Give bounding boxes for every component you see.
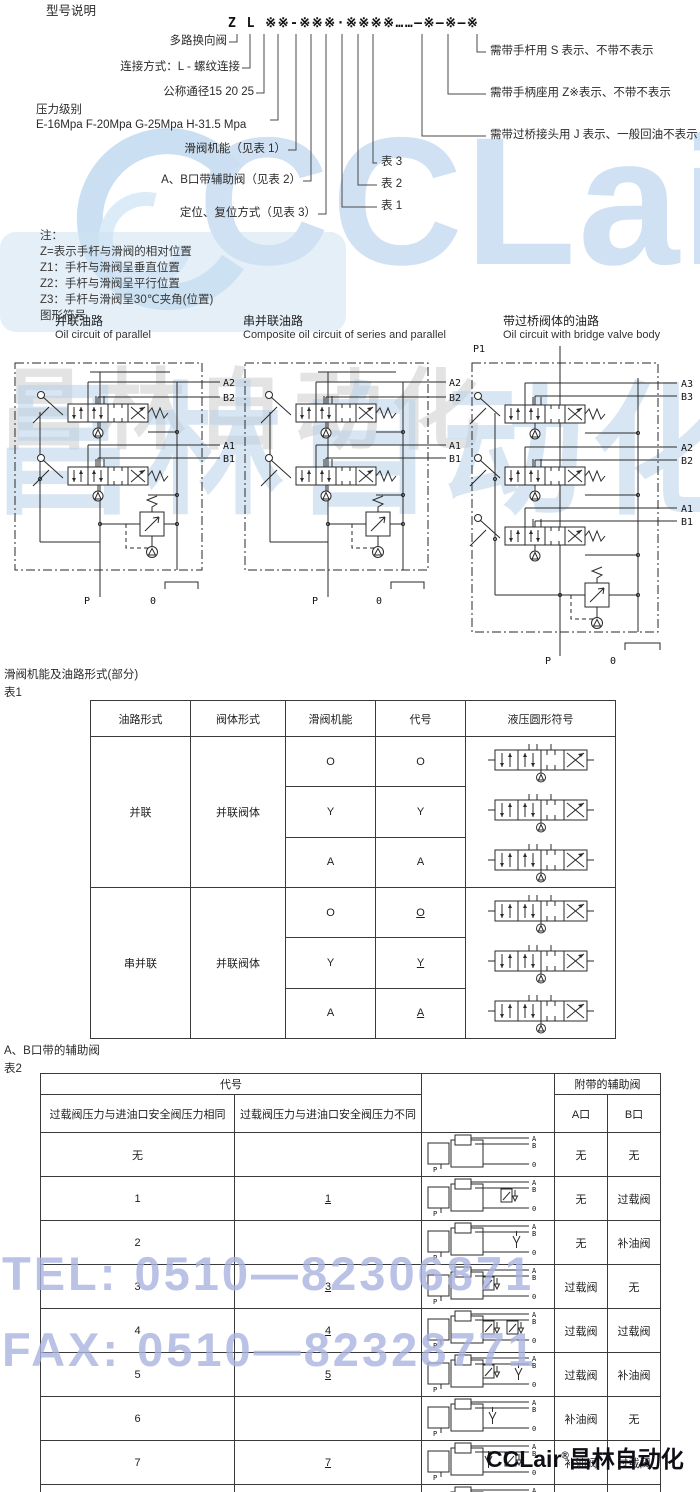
- note-line: Z=表示手杆与滑阀的相对位置: [40, 244, 213, 260]
- table2-caption: A、B口带的辅助阀: [4, 1042, 100, 1058]
- table1-header: 阀体形式: [191, 701, 286, 737]
- circuit3-title-cn: 带过桥阀体的油路: [503, 312, 660, 329]
- port-label-o: 0: [376, 596, 382, 607]
- port-label: B3: [681, 392, 693, 403]
- code-same-cell: 5: [41, 1353, 235, 1397]
- table-row: 1 1 A B 0 P 无 过载阀: [41, 1177, 661, 1221]
- symbol-cell: A B 0 P: [422, 1221, 555, 1265]
- port-label: A1: [449, 441, 461, 452]
- aux-b-cell: 补油阀: [608, 1485, 661, 1492]
- table1: 油路形式 阀体形式 滑阀机能 代号 液压圆形符号 并联 并联阀体 O O: [90, 700, 616, 1039]
- symbol-cell: A B 0 P: [422, 1309, 555, 1353]
- circuit-type-cell: 并联: [91, 737, 191, 888]
- table2-header-row2: 过载阀压力与进油口安全阀压力相同 过载阀压力与进油口安全阀压力不同 A口 B口: [41, 1095, 661, 1133]
- table2-symbol-header: [422, 1074, 555, 1133]
- symbol-cell: A B 0 P: [422, 1353, 555, 1397]
- table1-label: 表1: [4, 684, 22, 700]
- circuit1-title: 并联油路 Oil circuit of parallel: [55, 312, 151, 341]
- table2: 代号 附带的辅助阀 过载阀压力与进油口安全阀压力相同 过载阀压力与进油口安全阀压…: [40, 1073, 661, 1492]
- aux-valve-symbol: A B 0 P: [425, 1485, 551, 1492]
- table1-header: 代号: [376, 701, 466, 737]
- code-same-cell: 1: [41, 1177, 235, 1221]
- aux-valve-symbol: A B 0 P: [425, 1177, 551, 1217]
- code-diff-cell: 5: [235, 1353, 422, 1397]
- port-label-p: P: [433, 1430, 437, 1437]
- table2-header-diff: 过载阀压力与进油口安全阀压力不同: [235, 1095, 422, 1133]
- table2-header-a: A口: [555, 1095, 608, 1133]
- port-label: A2: [223, 378, 235, 389]
- port-label-b: B: [532, 1230, 536, 1238]
- spool-symbol: [482, 740, 600, 784]
- label-connection-type: 连接方式：L - 螺纹连接: [120, 60, 240, 75]
- pressure-grade-values: E-16Mpa F-20Mpa G-25Mpa H-31.5 Mpa: [36, 118, 246, 133]
- port-label-p: P: [312, 596, 318, 607]
- port-label-o: 0: [150, 596, 156, 607]
- port-label: B2: [449, 393, 461, 404]
- model-designation-section: 型号说明 Z L ※※-※※※·※※※※……—※—※—※ 多路换向阀 连接方式：…: [0, 0, 700, 232]
- symbol-cell: [466, 888, 616, 1039]
- table1-caption: 滑阀机能及油路形式(部分): [4, 666, 138, 682]
- code-cell: A: [376, 988, 466, 1038]
- port-label: B1: [449, 454, 461, 465]
- aux-b-cell: 补油阀: [608, 1221, 661, 1265]
- table-row: 无 A B 0 P 无 无: [41, 1133, 661, 1177]
- aux-a-cell: 补油阀: [555, 1397, 608, 1441]
- aux-a-cell: 补油阀: [555, 1485, 608, 1492]
- port-label-o: 0: [532, 1337, 536, 1345]
- notes-block: 注： Z=表示手杆与滑阀的相对位置 Z1：手杆与滑阀呈垂直位置 Z2：手杆与滑阀…: [40, 228, 213, 324]
- aux-a-cell: 无: [555, 1133, 608, 1177]
- circuit2-title-en: Composite oil circuit of series and para…: [243, 329, 446, 341]
- aux-a-cell: 无: [555, 1221, 608, 1265]
- spool-fn-cell: A: [286, 837, 376, 887]
- code-cell: O: [376, 737, 466, 787]
- aux-valve-symbol: A B 0 P: [425, 1397, 551, 1437]
- port-label-p1: P1: [473, 344, 485, 355]
- code-diff-cell: [235, 1397, 422, 1441]
- aux-a-cell: 无: [555, 1177, 608, 1221]
- note-line: Z3：手杆与滑阀呈30℃夹角(位置): [40, 292, 213, 308]
- code-cell: Y: [376, 938, 466, 988]
- port-label: A3: [681, 379, 693, 390]
- port-label: B2: [223, 393, 235, 404]
- circuit1-title-en: Oil circuit of parallel: [55, 329, 151, 341]
- aux-a-cell: 过载阀: [555, 1309, 608, 1353]
- note-line: Z2：手杆与滑阀呈平行位置: [40, 276, 213, 292]
- note-line: 注：: [40, 228, 213, 244]
- port-label-b: B: [532, 1362, 536, 1370]
- port-label-p: P: [433, 1254, 437, 1261]
- table1-header: 液压圆形符号: [466, 701, 616, 737]
- aux-valve-symbol: A B 0 P: [425, 1221, 551, 1261]
- label-pressure-grade: 压力级别 E-16Mpa F-20Mpa G-25Mpa H-31.5 Mpa: [36, 103, 246, 133]
- label-spool-function: 滑阀机能（见表 1）: [184, 142, 286, 157]
- table1-header-row: 油路形式 阀体形式 滑阀机能 代号 液压圆形符号: [91, 701, 616, 737]
- port-label-o: 0: [532, 1293, 536, 1301]
- port-label-p: P: [433, 1474, 437, 1481]
- port-label-p: P: [84, 596, 90, 607]
- port-label-o: 0: [532, 1161, 536, 1169]
- code-cell: O: [376, 888, 466, 938]
- circuit1-title-cn: 并联油路: [55, 312, 151, 329]
- port-label-o: 0: [532, 1205, 536, 1213]
- aux-a-cell: 过载阀: [555, 1353, 608, 1397]
- table-row: 8 A B 0 P 补油阀 补油阀: [41, 1485, 661, 1492]
- footer-brand: CCLair®昌林自动化: [486, 1440, 684, 1474]
- port-label: B2: [681, 456, 693, 467]
- aux-valve-symbol: A B 0 P: [425, 1309, 551, 1349]
- circuit3-title: 带过桥阀体的油路 Oil circuit with bridge valve b…: [503, 312, 660, 341]
- symbol-cell: A B 0 P: [422, 1485, 555, 1492]
- label-multiway-valve: 多路换向阀: [170, 34, 228, 49]
- port-label-p: P: [433, 1210, 437, 1217]
- table-row: 并联 并联阀体 O O: [91, 737, 616, 787]
- aux-b-cell: 补油阀: [608, 1353, 661, 1397]
- aux-valve-symbol: A B 0 P: [425, 1133, 551, 1173]
- symbol-cell: A B 0 P: [422, 1265, 555, 1309]
- label-hand-lever-option: 需带手杆用 S 表示、不带不表示: [490, 44, 654, 59]
- code-same-cell: 3: [41, 1265, 235, 1309]
- ref-table3: 表 3: [381, 155, 402, 170]
- bridge-valve-circuit-diagram: P1 A3 B3 A2 B2 A1 B1 P 0: [465, 338, 700, 673]
- circuit2-title-cn: 串并联油路: [243, 312, 446, 329]
- spool-symbol: [482, 991, 600, 1035]
- table-row: 5 5 A B 0 P 过载阀 补油阀: [41, 1353, 661, 1397]
- footer-brand-cn: 昌林自动化: [569, 1446, 684, 1472]
- port-label-b: B: [532, 1274, 536, 1282]
- footer-brand-name: CCLair: [486, 1446, 561, 1472]
- series-parallel-circuit-diagram: A2 B2 A1 B1 P 0: [238, 352, 463, 652]
- code-diff-cell: [235, 1133, 422, 1177]
- port-label-b: B: [532, 1186, 536, 1194]
- code-diff-cell: 4: [235, 1309, 422, 1353]
- port-label-p: P: [433, 1386, 437, 1393]
- label-handle-seat-option: 需带手柄座用 Z※表示、不带不表示: [490, 86, 671, 101]
- port-label-a: A: [532, 1487, 537, 1492]
- code-same-cell: 无: [41, 1133, 235, 1177]
- label-nominal-diameter: 公称通径15 20 25: [163, 85, 254, 100]
- table-row: 2 A B 0 P 无 补油阀: [41, 1221, 661, 1265]
- table2-header-row: 代号 附带的辅助阀: [41, 1074, 661, 1095]
- table-row: 6 A B 0 P 补油阀 无: [41, 1397, 661, 1441]
- aux-valve-symbol: A B 0 P: [425, 1265, 551, 1305]
- symbol-cell: A B 0 P: [422, 1133, 555, 1177]
- aux-valve-symbol: A B 0 P: [425, 1353, 551, 1393]
- table-row: 串并联 并联阀体 O O: [91, 888, 616, 938]
- port-label: B1: [681, 517, 693, 528]
- code-diff-cell: 3: [235, 1265, 422, 1309]
- code-same-cell: 7: [41, 1441, 235, 1485]
- port-label-p: P: [433, 1166, 437, 1173]
- code-cell: Y: [376, 787, 466, 837]
- code-diff-cell: 1: [235, 1177, 422, 1221]
- parallel-circuit-diagram: A2 B2 A1 B1 P 0: [10, 352, 240, 652]
- aux-b-cell: 无: [608, 1133, 661, 1177]
- spool-fn-cell: O: [286, 737, 376, 787]
- symbol-cell: A B 0 P: [422, 1177, 555, 1221]
- spool-symbol: [482, 790, 600, 834]
- code-diff-cell: 7: [235, 1441, 422, 1485]
- spool-symbol: [482, 840, 600, 884]
- code-same-cell: 4: [41, 1309, 235, 1353]
- label-aux-valve: A、B口带辅助阀（见表 2）: [161, 173, 301, 188]
- code-same-cell: 2: [41, 1221, 235, 1265]
- port-label-o: 0: [610, 656, 616, 667]
- port-label-b: B: [532, 1406, 536, 1414]
- registered-mark-icon: ®: [561, 1450, 568, 1461]
- aux-b-cell: 无: [608, 1397, 661, 1441]
- body-type-cell: 并联阀体: [191, 888, 286, 1039]
- ref-table2: 表 2: [381, 177, 402, 192]
- table1-header: 油路形式: [91, 701, 191, 737]
- port-label-b: B: [532, 1318, 536, 1326]
- table2-label: 表2: [4, 1060, 22, 1076]
- pressure-grade-title: 压力级别: [36, 103, 246, 118]
- label-bridge-connector-option: 需带过桥接头用 J 表示、一般回油不表示: [490, 128, 698, 143]
- aux-a-cell: 过载阀: [555, 1265, 608, 1309]
- table2-aux-group-header: 附带的辅助阀: [555, 1074, 661, 1095]
- spool-fn-cell: Y: [286, 787, 376, 837]
- table1-header: 滑阀机能: [286, 701, 376, 737]
- ref-table1: 表 1: [381, 199, 402, 214]
- aux-b-cell: 过载阀: [608, 1309, 661, 1353]
- body-type-cell: 并联阀体: [191, 737, 286, 888]
- port-label-p: P: [433, 1342, 437, 1349]
- code-diff-cell: [235, 1221, 422, 1265]
- port-label-o: 0: [532, 1425, 536, 1433]
- symbol-cell: [466, 737, 616, 888]
- note-line: Z1：手杆与滑阀呈垂直位置: [40, 260, 213, 276]
- code-same-cell: 6: [41, 1397, 235, 1441]
- code-diff-cell: [235, 1485, 422, 1492]
- port-label-b: B: [532, 1142, 536, 1150]
- port-label-o: 0: [532, 1249, 536, 1257]
- aux-b-cell: 无: [608, 1265, 661, 1309]
- port-label-p: P: [545, 656, 551, 667]
- spool-fn-cell: A: [286, 988, 376, 1038]
- port-label: A2: [681, 443, 693, 454]
- table-row: 3 3 A B 0 P 过载阀 无: [41, 1265, 661, 1309]
- table2-header-same: 过载阀压力与进油口安全阀压力相同: [41, 1095, 235, 1133]
- port-label: A1: [223, 441, 235, 452]
- datasheet-page: CCLair 昌林自动化 昌林自动化 型号说明 Z L ※※-※※※·※※※※……: [0, 0, 700, 1492]
- spool-fn-cell: O: [286, 888, 376, 938]
- table2-code-group-header: 代号: [41, 1074, 422, 1095]
- port-label-o: 0: [532, 1381, 536, 1389]
- code-same-cell: 8: [41, 1485, 235, 1492]
- port-label: B1: [223, 454, 235, 465]
- label-detent-reset: 定位、复位方式（见表 3）: [180, 206, 316, 221]
- circuit-type-cell: 串并联: [91, 888, 191, 1039]
- table2-header-b: B口: [608, 1095, 661, 1133]
- spool-fn-cell: Y: [286, 938, 376, 988]
- aux-b-cell: 过载阀: [608, 1177, 661, 1221]
- code-cell: A: [376, 837, 466, 887]
- symbol-cell: A B 0 P: [422, 1397, 555, 1441]
- spool-symbol: [482, 941, 600, 985]
- table-row: 4 4 A B 0 P 过载阀 过载阀: [41, 1309, 661, 1353]
- port-label-p: P: [433, 1298, 437, 1305]
- port-label: A1: [681, 504, 693, 515]
- port-label: A2: [449, 378, 461, 389]
- spool-symbol: [482, 891, 600, 935]
- circuit2-title: 串并联油路 Composite oil circuit of series an…: [243, 312, 446, 341]
